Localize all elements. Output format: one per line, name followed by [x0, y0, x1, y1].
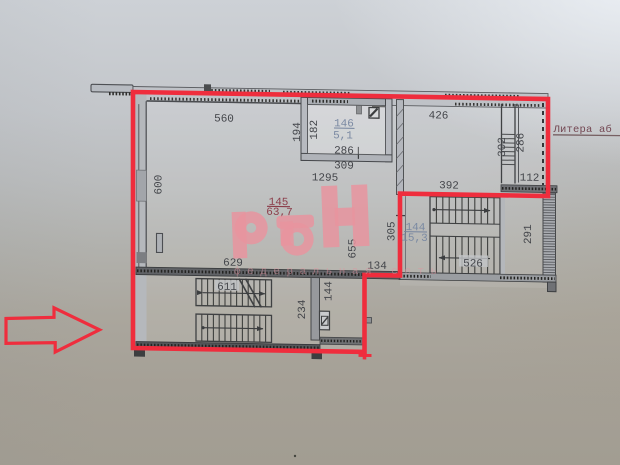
svg-text:305: 305 — [387, 221, 399, 241]
svg-text:Литера аб: Литера аб — [553, 123, 613, 136]
svg-text:600: 600 — [153, 175, 165, 195]
svg-text:234: 234 — [297, 299, 309, 319]
svg-text:112: 112 — [520, 173, 540, 185]
svg-text:144: 144 — [324, 281, 336, 301]
svg-text:309: 309 — [334, 160, 354, 172]
svg-text:426: 426 — [429, 110, 449, 122]
svg-text:611: 611 — [217, 282, 237, 294]
svg-text:15,3: 15,3 — [401, 233, 427, 245]
svg-text:5,1: 5,1 — [333, 130, 353, 142]
svg-text:182: 182 — [309, 120, 321, 140]
svg-text:федеральная сеть: федеральная сеть — [234, 265, 444, 278]
svg-text:291: 291 — [523, 224, 535, 244]
svg-text:1295: 1295 — [312, 172, 338, 184]
svg-text:526: 526 — [463, 258, 483, 270]
svg-text:560: 560 — [214, 113, 234, 125]
svg-text:302: 302 — [497, 137, 509, 157]
svg-text:392: 392 — [439, 180, 459, 192]
svg-text:194: 194 — [292, 122, 304, 142]
svg-text:286: 286 — [334, 145, 354, 157]
svg-text:286: 286 — [516, 133, 528, 153]
